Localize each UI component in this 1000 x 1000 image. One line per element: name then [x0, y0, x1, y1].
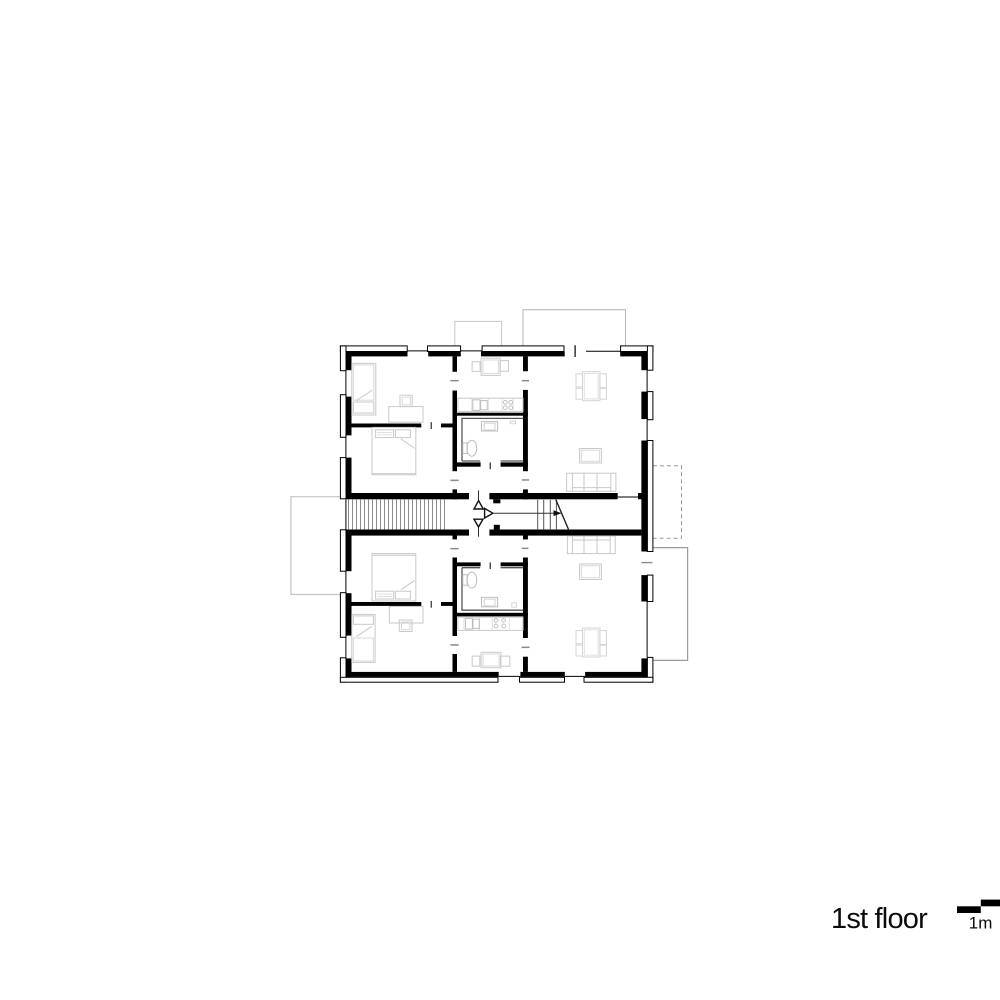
svg-text:1m: 1m	[969, 913, 993, 932]
svg-text:1st floor: 1st floor	[831, 903, 928, 935]
